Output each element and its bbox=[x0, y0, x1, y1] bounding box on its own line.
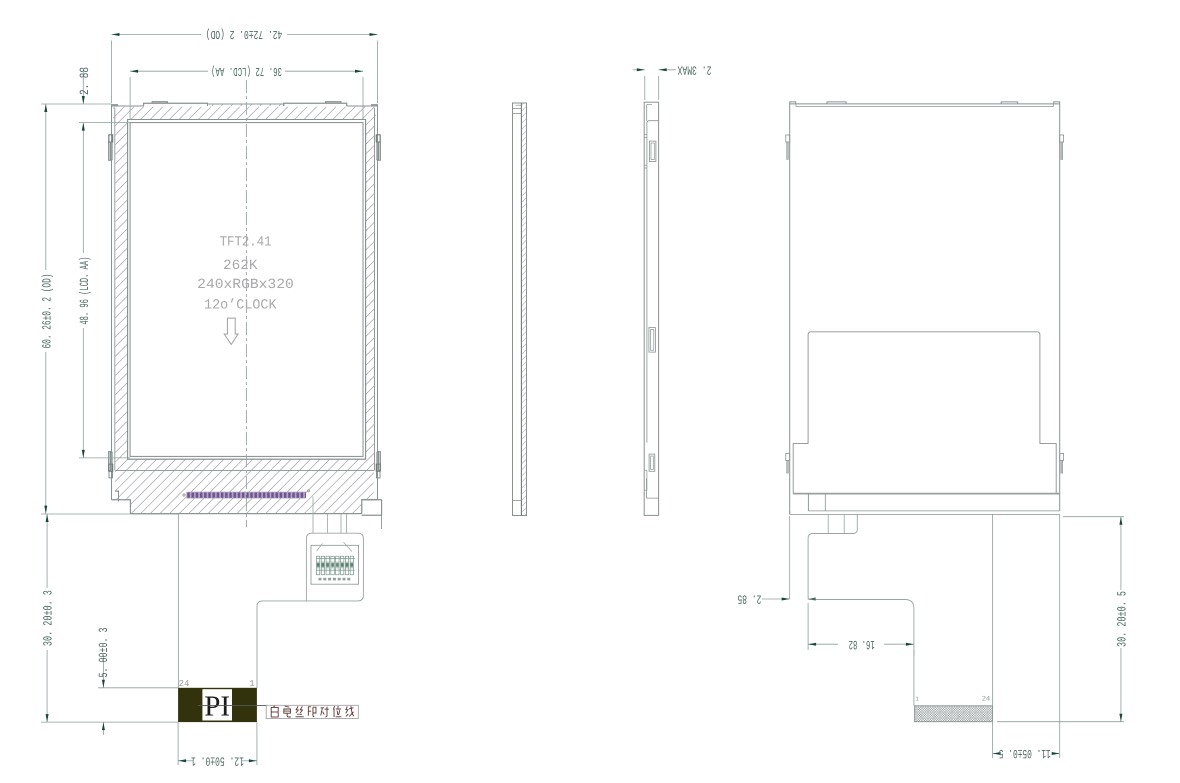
svg-text:1: 1 bbox=[249, 679, 254, 689]
svg-text:2. 85: 2. 85 bbox=[737, 592, 761, 606]
svg-text:48. 96 (LCD. AA): 48. 96 (LCD. AA) bbox=[78, 257, 92, 325]
svg-text:PI: PI bbox=[204, 691, 230, 723]
svg-text:12. 50±0. 1: 12. 50±0. 1 bbox=[191, 753, 244, 767]
svg-text:2. 3MAX: 2. 3MAX bbox=[677, 62, 711, 76]
svg-text:16. 82: 16. 82 bbox=[849, 637, 875, 651]
svg-text:36. 72 (LCD. AA): 36. 72 (LCD. AA) bbox=[211, 64, 282, 78]
svg-text:TFT2.41: TFT2.41 bbox=[220, 235, 272, 251]
svg-text:1: 1 bbox=[915, 696, 919, 703]
svg-text:42. 72±0. 2 (OD): 42. 72±0. 2 (OD) bbox=[206, 27, 283, 41]
svg-text:24: 24 bbox=[982, 696, 990, 704]
svg-text:24: 24 bbox=[179, 679, 190, 689]
svg-text:2. 88: 2. 88 bbox=[78, 67, 92, 95]
svg-text:60. 26±0. 2 (OD): 60. 26±0. 2 (OD) bbox=[40, 274, 54, 349]
svg-text:12o’CLOCK: 12o’CLOCK bbox=[204, 298, 277, 314]
svg-text:240xRGBx320: 240xRGBx320 bbox=[197, 277, 294, 293]
svg-text:11. 05±0. 5: 11. 05±0. 5 bbox=[999, 746, 1051, 760]
svg-text:262K: 262K bbox=[223, 258, 258, 274]
svg-text:5. 00±0. 3: 5. 00±0. 3 bbox=[97, 628, 111, 678]
svg-text:30. 20±0. 3: 30. 20±0. 3 bbox=[42, 590, 56, 646]
svg-text:30. 20±0. 5: 30. 20±0. 5 bbox=[1115, 591, 1129, 647]
